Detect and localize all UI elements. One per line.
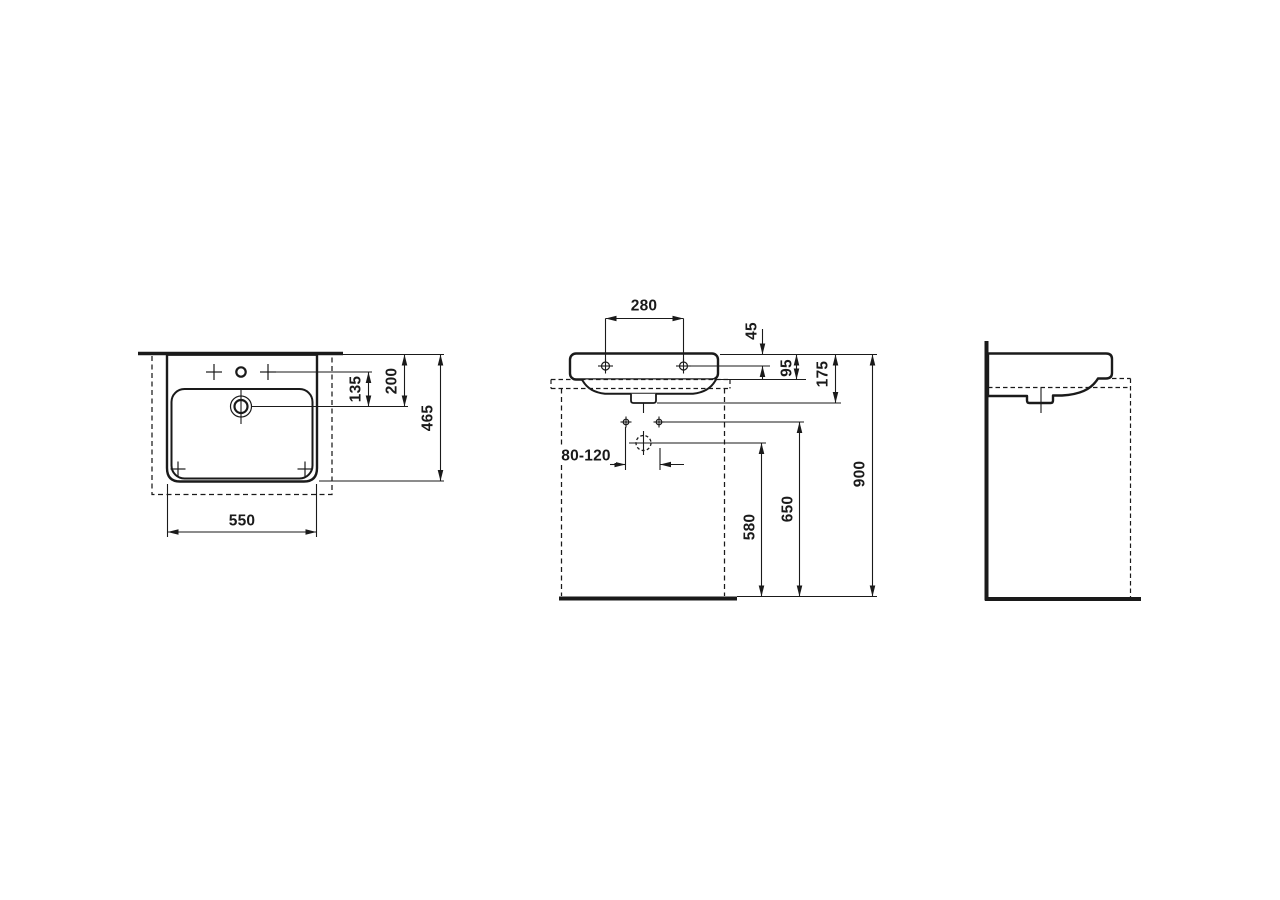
side-basin-profile (988, 354, 1112, 404)
fixing-hole-right-icon (654, 417, 665, 428)
plan-basin-rim (167, 355, 317, 482)
dim-front-tap-spacing: 280 (606, 298, 684, 319)
dim-front-rim-to-tap: 45 (744, 322, 763, 380)
dim-plan-rear-to-drain: 200 (384, 355, 405, 407)
dim-label-135: 135 (348, 376, 365, 403)
dim-label-280: 280 (631, 298, 657, 315)
dim-label-45: 45 (744, 322, 761, 340)
dim-label-580: 580 (742, 514, 759, 540)
technical-drawing-page: 135 200 465 550 280 (0, 0, 1280, 900)
dim-front-basin-height: 175 (815, 355, 836, 404)
dim-label-200: 200 (384, 368, 401, 394)
front-bowl-underside (582, 380, 716, 394)
front-drain-box (631, 394, 656, 403)
dim-label-175: 175 (815, 361, 832, 388)
drawing-canvas: 135 200 465 550 280 (0, 0, 1280, 900)
dim-front-floor-to-fixing: 650 (780, 422, 800, 597)
dim-front-rim-to-apron: 95 (779, 355, 797, 380)
dim-label-95: 95 (779, 359, 796, 377)
dim-label-650: 650 (780, 496, 797, 522)
dim-label-900: 900 (852, 461, 869, 487)
dim-front-floor-to-rim: 900 (852, 355, 873, 597)
dim-plan-tap-to-drain: 135 (348, 372, 369, 407)
dim-label-465: 465 (420, 405, 437, 432)
front-view: 280 (551, 298, 877, 599)
dim-plan-width: 550 (168, 484, 317, 537)
side-view (985, 341, 1141, 601)
side-dashed-outline (988, 379, 1131, 599)
fixing-hole-left-icon (621, 417, 632, 428)
dim-plan-depth: 465 (420, 355, 441, 482)
plan-view: 135 200 465 550 (138, 354, 444, 538)
dim-label-80-120: 80-120 (561, 448, 610, 465)
dim-front-floor-to-drain: 580 (742, 443, 762, 597)
dim-label-550: 550 (229, 513, 255, 530)
dim-front-fixing-span: 80-120 (556, 427, 684, 470)
